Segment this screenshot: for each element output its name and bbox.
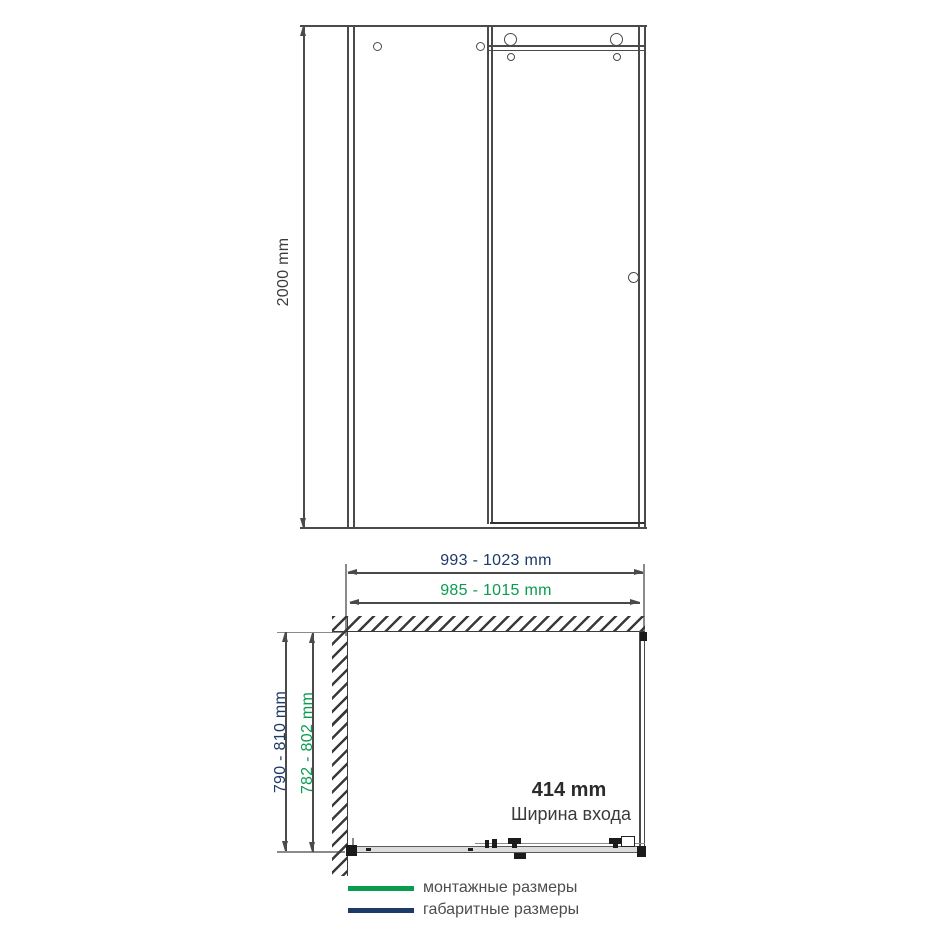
mounting-width-dimension-line bbox=[350, 602, 640, 604]
overall-depth-label: 790 - 810 mm bbox=[272, 687, 290, 797]
entry-width-value: 414 mm bbox=[489, 779, 649, 802]
roller-pin-icon bbox=[613, 53, 621, 61]
mounting-hole-icon bbox=[476, 42, 485, 51]
track-tick bbox=[468, 848, 473, 851]
left-wall-hatch bbox=[332, 616, 348, 876]
roller-pin-icon bbox=[507, 53, 515, 61]
arrow-right-icon bbox=[634, 569, 644, 575]
arrow-up-icon bbox=[282, 632, 288, 642]
door-bottom-edge bbox=[490, 522, 645, 524]
arrow-down-icon bbox=[309, 842, 315, 852]
arrow-left-icon bbox=[347, 569, 357, 575]
roller-carriage-stem bbox=[613, 844, 618, 848]
overall-width-label: 993 - 1023 mm bbox=[396, 552, 596, 570]
left-wall-profile-inner bbox=[353, 25, 355, 528]
roller-icon bbox=[504, 33, 517, 46]
wall-bracket bbox=[640, 632, 647, 641]
top-wall-hatch bbox=[332, 616, 645, 632]
door-edge-inner bbox=[491, 25, 493, 524]
technical-drawing: 2000 mm 993 - 1023 mm bbox=[0, 0, 950, 950]
track-tick bbox=[366, 848, 371, 851]
anti-jump-block bbox=[514, 853, 526, 859]
left-wall-profile-outer bbox=[347, 25, 349, 528]
overall-width-dimension-line bbox=[348, 572, 643, 574]
guide-bracket bbox=[485, 840, 489, 848]
mounting-width-label: 985 - 1015 mm bbox=[396, 582, 596, 600]
height-dimension-line bbox=[303, 27, 305, 527]
mounting-hole-icon bbox=[373, 42, 382, 51]
track-corner-bracket bbox=[346, 845, 357, 856]
height-dimension-label: 2000 mm bbox=[275, 232, 293, 312]
arrow-down-icon bbox=[282, 841, 288, 851]
arrow-up-icon bbox=[300, 26, 306, 36]
mounting-color-swatch bbox=[348, 886, 414, 891]
mounting-legend-label: монтажные размеры bbox=[423, 879, 577, 897]
track-end-bracket bbox=[637, 846, 646, 857]
arrow-right-icon bbox=[630, 599, 640, 605]
mounting-depth-label: 782 - 802 mm bbox=[299, 688, 317, 798]
overall-color-swatch bbox=[348, 908, 414, 913]
roller-icon bbox=[610, 33, 623, 46]
arrow-up-icon bbox=[309, 633, 315, 643]
guide-bracket bbox=[492, 839, 497, 848]
arrow-left-icon bbox=[349, 599, 359, 605]
roller-carriage-stem bbox=[512, 844, 517, 848]
overall-legend-label: габаритные размеры bbox=[423, 901, 579, 919]
door-edge-outer bbox=[487, 25, 489, 524]
rail-bottom-line bbox=[487, 50, 645, 52]
door-handle-icon bbox=[628, 272, 639, 283]
right-frame-outer bbox=[644, 25, 646, 528]
entry-width-caption: Ширина входа bbox=[481, 804, 661, 825]
plan-handle bbox=[621, 836, 635, 847]
